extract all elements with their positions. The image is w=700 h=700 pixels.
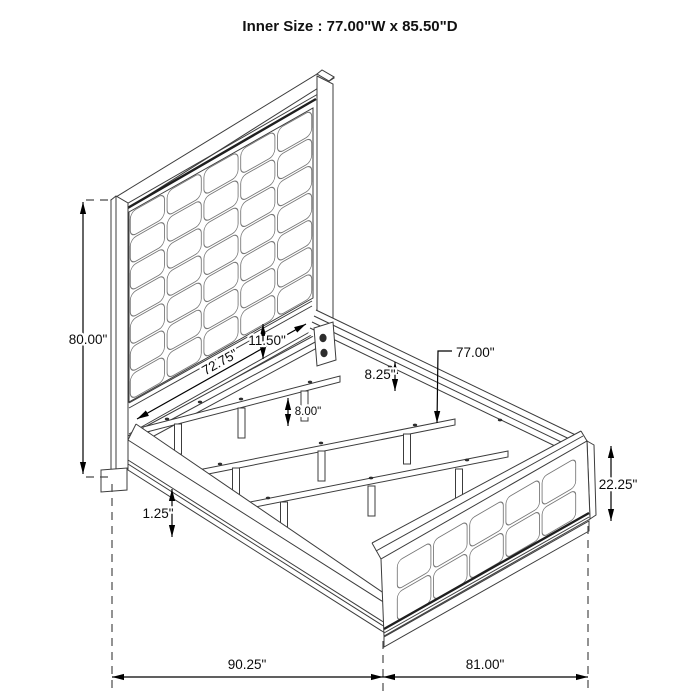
- slat-2: [188, 419, 455, 498]
- dim-label-headboard-height: 80.00": [69, 332, 108, 347]
- dim-overall-width: 81.00": [383, 657, 588, 677]
- dim-label-overall-depth: 90.25": [228, 657, 267, 672]
- dim-footboard-height: 22.25": [599, 446, 638, 521]
- dim-headboard-height: 80.00": [69, 200, 113, 477]
- dim-label-headboard-panel-gap: 11.50": [248, 333, 286, 348]
- dim-label-overall-width: 81.00": [466, 657, 505, 672]
- dim-label-side-rail-trim: 1.25": [142, 506, 173, 521]
- dim-label-footboard-height: 22.25": [599, 477, 638, 492]
- support-leg: [404, 434, 411, 464]
- headboard-left-foot: [101, 468, 127, 492]
- bed-dimension-diagram: 80.00" 72.75" 11.50" 8.25" 8.00" 77.00": [0, 0, 700, 700]
- rail-bracket: [314, 322, 336, 366]
- diagram-title: Inner Size : 77.00"W x 85.50"D: [242, 18, 457, 35]
- support-leg: [318, 451, 325, 481]
- left-side-rail: [128, 424, 388, 633]
- bed-dimension-diagram-page: 80.00" 72.75" 11.50" 8.25" 8.00" 77.00": [0, 0, 700, 700]
- headboard-left-post: [111, 196, 128, 476]
- dim-side-rail-height: 8.25": [364, 362, 395, 391]
- support-leg: [368, 486, 375, 516]
- support-leg: [175, 424, 182, 454]
- dim-overall-depth: 90.25": [112, 657, 383, 677]
- support-leg: [238, 408, 245, 438]
- dim-label-side-rail-height: 8.25": [364, 367, 395, 382]
- dim-label-slat-width: 77.00": [456, 345, 495, 360]
- dim-label-support-leg-height: 8.00": [295, 406, 321, 418]
